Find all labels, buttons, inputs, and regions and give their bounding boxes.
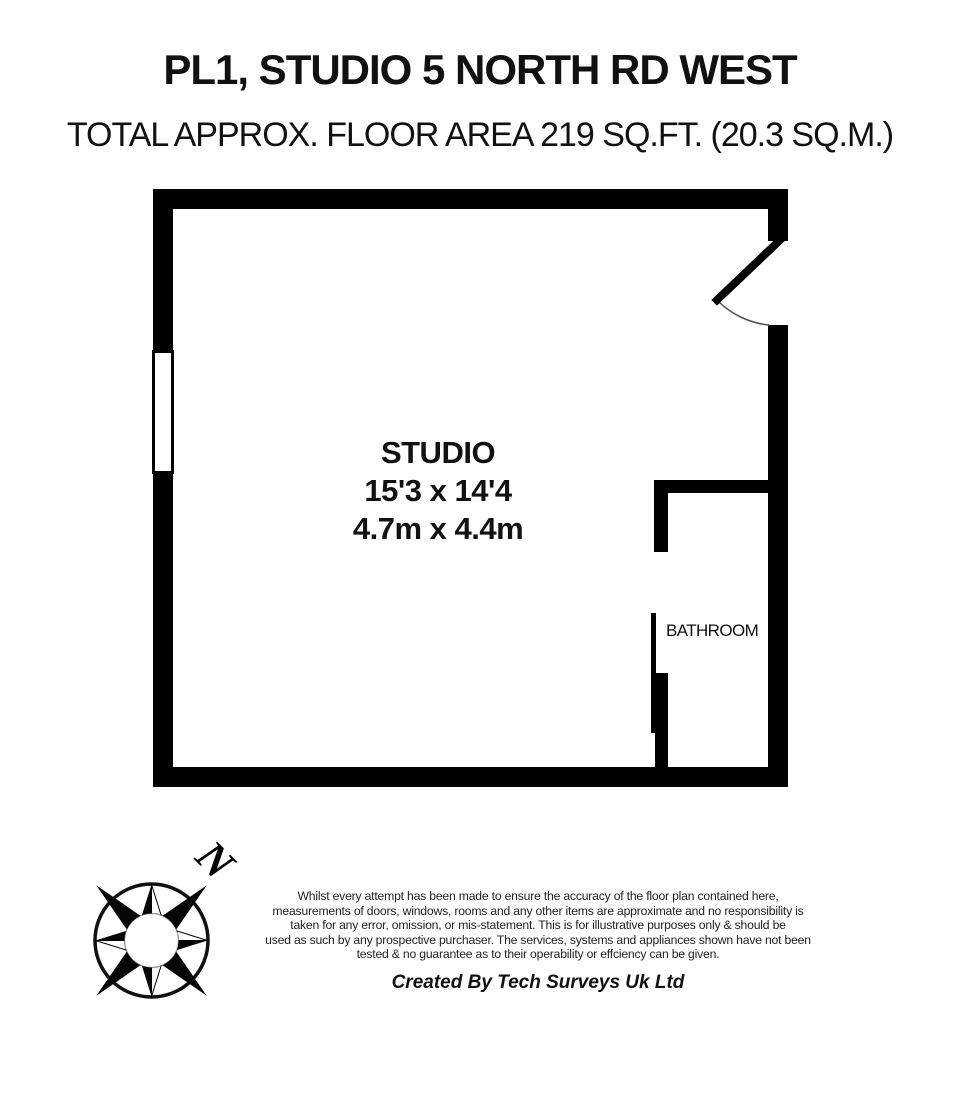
compass-point-s-dark	[142, 941, 152, 997]
compass-point-e-light	[152, 931, 208, 941]
wall-top	[153, 189, 788, 209]
compass-point-se	[152, 941, 207, 996]
compass-point-e-dark	[152, 941, 208, 951]
compass-point-w-dark	[96, 931, 152, 941]
compass-center	[125, 914, 179, 968]
disclaimer-line: tested & no guarantee as to their operab…	[238, 947, 838, 962]
compass-point-n-dark	[142, 885, 152, 941]
disclaimer-line: measurements of doors, windows, rooms an…	[238, 904, 838, 919]
page-title: PL1, STUDIO 5 NORTH RD WEST	[0, 46, 960, 94]
wall-left-upper	[153, 189, 173, 352]
compass-point-ne	[152, 885, 207, 940]
studio-size-imperial: 15'3 x 14'4	[288, 472, 588, 510]
floorplan-page: PL1, STUDIO 5 NORTH RD WEST TOTAL APPROX…	[0, 0, 980, 1117]
compass-point-w-light	[96, 941, 152, 951]
studio-name: STUDIO	[288, 434, 588, 472]
bathroom-room-label: BATHROOM	[666, 621, 770, 641]
disclaimer-line: taken for any error, omission, or mis-st…	[238, 918, 838, 933]
compass-point-n-light	[152, 885, 162, 941]
compass-circle	[95, 884, 208, 997]
compass-point-nw	[96, 885, 151, 940]
compass-point-s-light	[152, 941, 162, 997]
disclaimer-line: Whilst every attempt has been made to en…	[238, 889, 838, 904]
disclaimer-text: Whilst every attempt has been made to en…	[238, 889, 838, 962]
floor-area-subtitle: TOTAL APPROX. FLOOR AREA 219 SQ.FT. (20.…	[0, 116, 960, 155]
compass-north-label: N	[186, 831, 245, 890]
wall-bottom	[153, 767, 788, 787]
door-symbol	[717, 241, 779, 325]
bathroom-wall-vertical-lower	[655, 673, 668, 767]
door-leaf	[717, 241, 779, 300]
disclaimer-line: used as such by any prospective purchase…	[238, 933, 838, 948]
bathroom-wall-horizontal	[654, 480, 768, 493]
bathroom-wall-vertical-upper	[654, 480, 668, 552]
wall-right-upper	[768, 189, 788, 241]
wall-left-lower	[153, 473, 173, 787]
studio-size-metric: 4.7m x 4.4m	[288, 510, 588, 548]
compass-rose-icon: N	[95, 831, 245, 997]
compass-point-sw	[96, 941, 151, 996]
door-swing-arc	[717, 300, 769, 325]
wall-right-lower	[768, 325, 788, 787]
window-symbol	[152, 350, 174, 474]
creator-credit: Created By Tech Surveys Uk Ltd	[238, 972, 838, 994]
studio-room-label: STUDIO 15'3 x 14'4 4.7m x 4.4m	[288, 434, 588, 548]
